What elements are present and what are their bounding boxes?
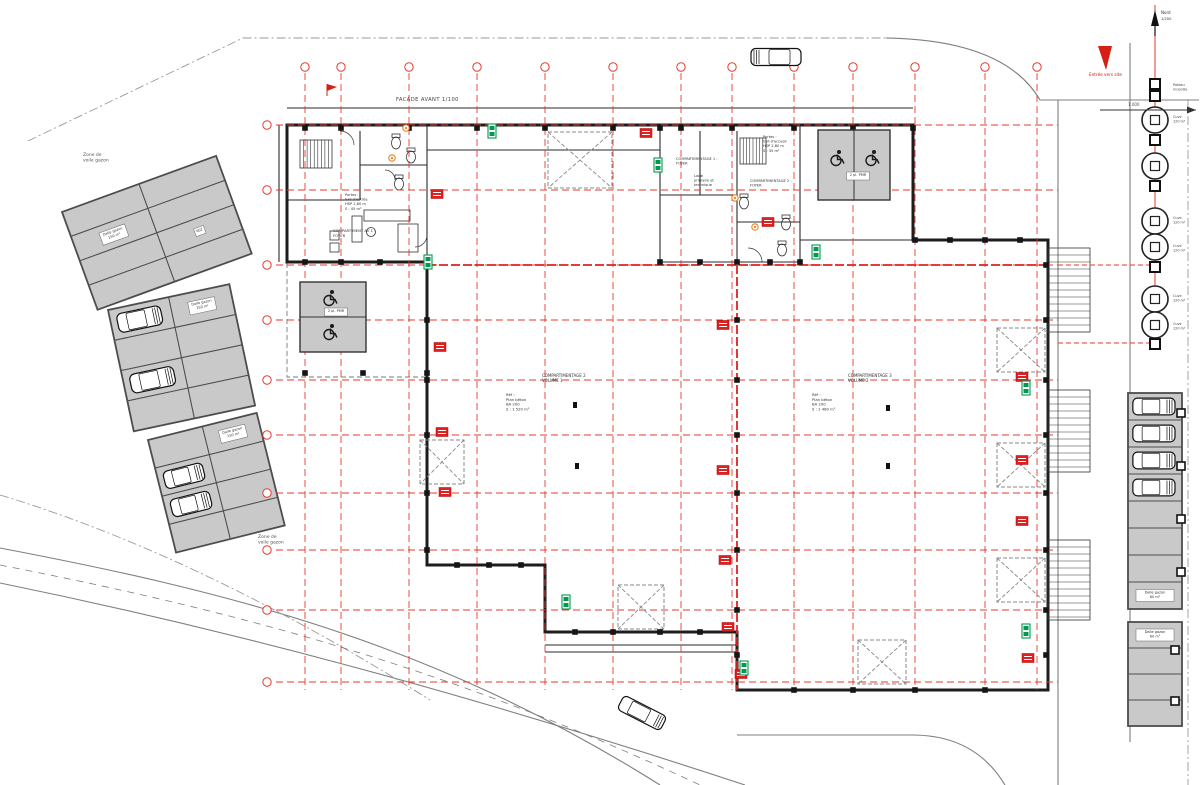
- fire-rating-label: [1022, 654, 1034, 663]
- column-marker: [1017, 237, 1023, 243]
- plan-element: [872, 150, 876, 154]
- plan-element: [330, 324, 334, 328]
- grid-bubble: [263, 186, 271, 194]
- grid-bubble: [263, 606, 271, 614]
- fire-rating-label: [719, 556, 731, 565]
- plan-element: [391, 157, 393, 159]
- hydrant-node: [1150, 181, 1160, 191]
- plan-element: [1133, 452, 1175, 469]
- grid-bubble: [849, 63, 857, 71]
- plan-element: [1016, 517, 1028, 526]
- pmr-label-chip-text: 2 pl. PMR: [328, 309, 345, 313]
- column-marker: [302, 125, 308, 131]
- emergency-exit-label: [424, 255, 432, 269]
- column-marker: [791, 125, 797, 131]
- plan-element: [1016, 456, 1028, 465]
- plan-element: [719, 556, 731, 565]
- column-marker: [1043, 262, 1049, 268]
- plan-element: [1024, 389, 1029, 393]
- plan-element: [490, 132, 495, 136]
- plan-element: [1048, 540, 1090, 620]
- column-marker: [302, 370, 308, 376]
- hydrant-node: [1150, 262, 1160, 272]
- column-marker: [1043, 547, 1049, 553]
- emergency-exit-label: [654, 158, 662, 172]
- column-marker: [572, 629, 578, 635]
- tank-valve: [1151, 243, 1160, 252]
- door-symbol: [886, 405, 890, 411]
- plan-element: [426, 263, 431, 267]
- car-icon: [1133, 425, 1175, 442]
- plan-element: [1133, 398, 1175, 415]
- marker-node: [1171, 697, 1179, 705]
- column-marker: [734, 317, 740, 323]
- plan-element: [640, 129, 652, 138]
- door-number-label: [732, 195, 738, 201]
- plan-element: [1024, 383, 1029, 387]
- column-marker: [424, 547, 430, 553]
- grid-bubble: [609, 63, 617, 71]
- fire-rating-label: [1016, 373, 1028, 382]
- column-marker: [982, 687, 988, 693]
- plan-element: [490, 126, 495, 130]
- parking-block: Dalle gazon150 m²: [108, 284, 255, 431]
- grid-bubble: [263, 489, 271, 497]
- site-plan-canvas: FACADE AVANT 1/100 Entrée vers site Nord…: [0, 0, 1200, 785]
- column-marker: [1043, 490, 1049, 496]
- plan-element: [1133, 425, 1175, 442]
- grid-bubble: [263, 121, 271, 129]
- fire-rating-label: [431, 190, 443, 199]
- plan-element: [405, 127, 407, 129]
- column-marker: [610, 125, 616, 131]
- plan-element: [742, 669, 747, 673]
- column-marker: [947, 237, 953, 243]
- emergency-exit-label: [1022, 381, 1030, 395]
- plan-element: [837, 150, 841, 154]
- column-marker: [791, 687, 797, 693]
- column-marker: [697, 629, 703, 635]
- column-marker: [657, 259, 663, 265]
- plan-element: [426, 257, 431, 261]
- column-marker: [734, 377, 740, 383]
- hydrant-node: [1150, 91, 1160, 101]
- column-marker: [657, 125, 663, 131]
- column-marker: [734, 490, 740, 496]
- plan-element: [434, 343, 446, 352]
- emergency-exit-label: [488, 124, 496, 138]
- tank-valve: [1151, 217, 1160, 226]
- door-symbol: [575, 463, 579, 469]
- marker-node: [1171, 646, 1179, 654]
- fire-rating-label: [439, 488, 451, 497]
- plan-element: [436, 428, 448, 437]
- grid-bubble: [301, 63, 309, 71]
- column-marker: [734, 652, 740, 658]
- fire-rating-label: [717, 321, 729, 330]
- tank-label: Poteauincendie: [1173, 83, 1187, 91]
- column-marker: [424, 377, 430, 383]
- parking-stall: [1128, 674, 1182, 700]
- grid-bubble: [473, 63, 481, 71]
- grid-bubble: [263, 376, 271, 384]
- plan-element: [439, 488, 451, 497]
- entrance-label: Entrée vers site: [1089, 72, 1122, 77]
- column-marker: [486, 562, 492, 568]
- fire-rating-label: [434, 343, 446, 352]
- tank-valve: [1151, 116, 1160, 125]
- parking-stall: [1128, 501, 1182, 528]
- zone-label-topleft: Zone devoile gazon: [83, 152, 109, 164]
- column-marker: [767, 259, 773, 265]
- tank-label: Cuve120 m³: [1173, 322, 1186, 330]
- column-marker: [518, 562, 524, 568]
- fire-rating-label: [717, 466, 729, 475]
- exterior-stair: [1048, 390, 1090, 472]
- column-marker: [734, 607, 740, 613]
- pmr-parking-area: [818, 130, 890, 200]
- column-marker: [474, 125, 480, 131]
- grid-bubble: [263, 316, 271, 324]
- column-marker: [1043, 652, 1049, 658]
- column-marker: [1043, 432, 1049, 438]
- column-marker: [542, 125, 548, 131]
- grid-bubble: [1033, 63, 1041, 71]
- parking-strip: Dalle gazon60 m²: [1128, 393, 1182, 609]
- column-marker: [1043, 607, 1049, 613]
- hydrant-node: [1150, 339, 1160, 349]
- column-marker: [657, 629, 663, 635]
- survey-flag: [327, 84, 337, 96]
- column-marker: [424, 490, 430, 496]
- column-marker: [697, 259, 703, 265]
- car-icon: [617, 695, 667, 731]
- grid-bubble: [405, 63, 413, 71]
- plan-element: [814, 253, 819, 257]
- plan-element: [1016, 373, 1028, 382]
- north-arrow: [1151, 10, 1159, 36]
- exterior-stair: [1048, 540, 1090, 620]
- parking-strip: Dalle gazon60 m²: [1128, 622, 1182, 726]
- plan-element: [722, 623, 734, 632]
- marker-node: [1177, 515, 1185, 523]
- fire-rating-label: [640, 129, 652, 138]
- plan-element: [754, 226, 756, 228]
- plan-element: [762, 218, 774, 227]
- column-marker: [377, 259, 383, 265]
- plan-element: [751, 49, 801, 66]
- road-edge: [737, 735, 1005, 785]
- tank-valve: [1151, 295, 1160, 304]
- building-layer: [279, 108, 1090, 690]
- plan-element: [656, 160, 661, 164]
- grid-bubble: [263, 261, 271, 269]
- tank-label: Cuve120 m³: [1173, 294, 1186, 302]
- grid-bubble: [263, 546, 271, 554]
- plan-element: [327, 84, 337, 91]
- plan-element: [734, 197, 736, 199]
- parking-stall: [1128, 555, 1182, 582]
- column-marker: [729, 125, 735, 131]
- plan-element: [1133, 479, 1175, 496]
- column-marker: [797, 259, 803, 265]
- fire-rating-label: [722, 623, 734, 632]
- grid-bubble: [677, 63, 685, 71]
- hydrant-node: [1150, 79, 1160, 89]
- column-marker: [424, 432, 430, 438]
- column-marker: [734, 432, 740, 438]
- grid-bubble: [981, 63, 989, 71]
- column-marker: [912, 237, 918, 243]
- plan-element: [814, 247, 819, 251]
- door-number-label: [389, 155, 395, 161]
- column-marker: [338, 125, 344, 131]
- north-scale-label: 1/200: [1161, 17, 1172, 21]
- tank-label: Cuve120 m³: [1173, 244, 1186, 252]
- facade-title: FACADE AVANT 1/100: [396, 97, 459, 103]
- car-icon: [1133, 398, 1175, 415]
- plan-element: [717, 321, 729, 330]
- column-marker: [454, 562, 460, 568]
- emergency-exit-label: [562, 595, 570, 609]
- north-label: Nord: [1161, 10, 1171, 15]
- column-marker: [424, 317, 430, 323]
- plan-element: [717, 466, 729, 475]
- plan-element: [1024, 626, 1029, 630]
- sprinkler-tanks-layer: PoteauincendieCuve120 m³Cuve120 m³Cuve12…: [1142, 5, 1187, 349]
- hydrant-node: [1150, 135, 1160, 145]
- plan-element: [564, 603, 569, 607]
- column-marker: [910, 125, 916, 131]
- marker-node: [1177, 409, 1185, 417]
- marker-node: [1177, 462, 1185, 470]
- marker-node: [1177, 568, 1185, 576]
- grid-bubble: [263, 431, 271, 439]
- plan-element: [431, 190, 443, 199]
- dim-label: 1.000: [1128, 102, 1140, 107]
- column-marker: [1043, 317, 1049, 323]
- grid-bubble: [728, 63, 736, 71]
- exterior-stair: [1048, 248, 1090, 332]
- fire-rating-label: [1016, 456, 1028, 465]
- parking-stall: [1128, 528, 1182, 555]
- door-symbol: [886, 463, 890, 469]
- emergency-exit-label: [812, 245, 820, 259]
- plan-element: [330, 290, 334, 294]
- fire-rating-label: [762, 218, 774, 227]
- emergency-exit-label: [1022, 624, 1030, 638]
- car-icon: [1133, 479, 1175, 496]
- grid-bubble: [263, 678, 271, 686]
- fire-rating-label: [1016, 517, 1028, 526]
- plan-element: [742, 663, 747, 667]
- tank-valve: [1151, 162, 1160, 171]
- fire-rating-label: [436, 428, 448, 437]
- plan-element: [1151, 10, 1159, 26]
- column-marker: [424, 370, 430, 376]
- emergency-exit-label: [740, 661, 748, 675]
- column-marker: [1043, 377, 1049, 383]
- column-marker: [302, 259, 308, 265]
- column-marker: [360, 370, 366, 376]
- column-marker: [734, 547, 740, 553]
- entrance-arrow: [1098, 46, 1112, 70]
- plan-element: [1022, 654, 1034, 663]
- grid-bubble: [541, 63, 549, 71]
- pmr-label-chip-text: 2 pl. PMR: [850, 173, 867, 177]
- plan-element: [656, 166, 661, 170]
- column-marker: [982, 237, 988, 243]
- zone-label-bottomleft: Zone devoile gazon: [258, 534, 284, 546]
- grid-bubble: [337, 63, 345, 71]
- column-marker: [912, 687, 918, 693]
- floor-plan-drawing: FACADE AVANT 1/100 Entrée vers site Nord…: [0, 0, 1200, 785]
- column-marker: [610, 629, 616, 635]
- plan-element: [1187, 107, 1196, 114]
- car-icon: [1133, 452, 1175, 469]
- tank-valve: [1151, 321, 1160, 330]
- column-marker: [734, 259, 740, 265]
- tank-label: Cuve120 m³: [1173, 216, 1186, 224]
- door-number-label: [752, 224, 758, 230]
- grid-bubble: [911, 63, 919, 71]
- car-icon: [751, 49, 801, 66]
- plan-element: [1024, 632, 1029, 636]
- column-marker: [678, 125, 684, 131]
- column-marker: [338, 259, 344, 265]
- tank-label: Cuve120 m³: [1173, 115, 1186, 123]
- door-number-label: [403, 125, 409, 131]
- door-symbol: [573, 402, 577, 408]
- plan-element: [564, 597, 569, 601]
- column-marker: [850, 687, 856, 693]
